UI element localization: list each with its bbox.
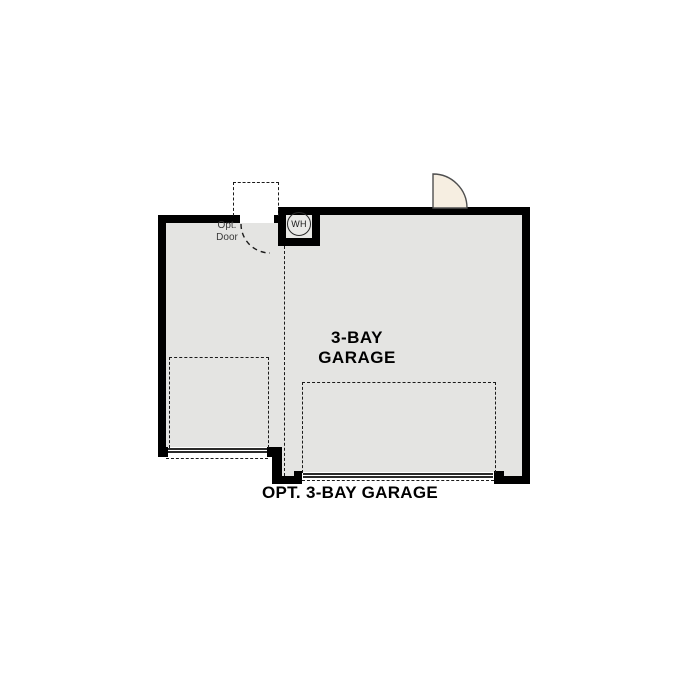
wall-right	[522, 207, 530, 484]
main-garage-door-outline	[302, 382, 496, 473]
opt-door-stoop-outline	[233, 182, 279, 216]
main-garage-door-line-2	[303, 476, 493, 478]
opt-bay-garage-door-line-2	[168, 451, 267, 453]
opt-door-label-line2: Door	[197, 232, 257, 244]
main-garage-label-line2: GARAGE	[277, 348, 437, 368]
entry-door-swing	[433, 174, 467, 208]
opt-door-label-line1: Opt.	[197, 220, 257, 232]
water-heater-symbol: WH	[287, 212, 311, 236]
main-garage-label-line1: 3-BAY	[277, 328, 437, 348]
main-garage-exterior-dashed-line	[302, 480, 494, 481]
opt-bay-exterior-dashed-line	[166, 458, 268, 459]
plan-caption: OPT. 3-BAY GARAGE	[150, 483, 550, 503]
water-heater-label: WH	[291, 219, 306, 229]
wall-stub-bottom-left	[158, 447, 168, 457]
opt-bay-garage-door-line-1	[168, 448, 267, 450]
wall-stub-bottom-mid	[267, 447, 282, 457]
water-heater-box-wall-bottom	[278, 238, 320, 246]
door-jamb-left	[294, 471, 302, 481]
main-garage-door-line-1	[303, 473, 493, 475]
floor-plan: WH Opt. Door 3-BAY GARAGE OPT. 3-BAY GAR…	[0, 0, 687, 687]
opt-door-label: Opt. Door	[197, 220, 257, 244]
main-garage-label: 3-BAY GARAGE	[277, 328, 437, 368]
wall-left	[158, 217, 166, 457]
opt-bay-garage-door-outline	[169, 357, 269, 448]
